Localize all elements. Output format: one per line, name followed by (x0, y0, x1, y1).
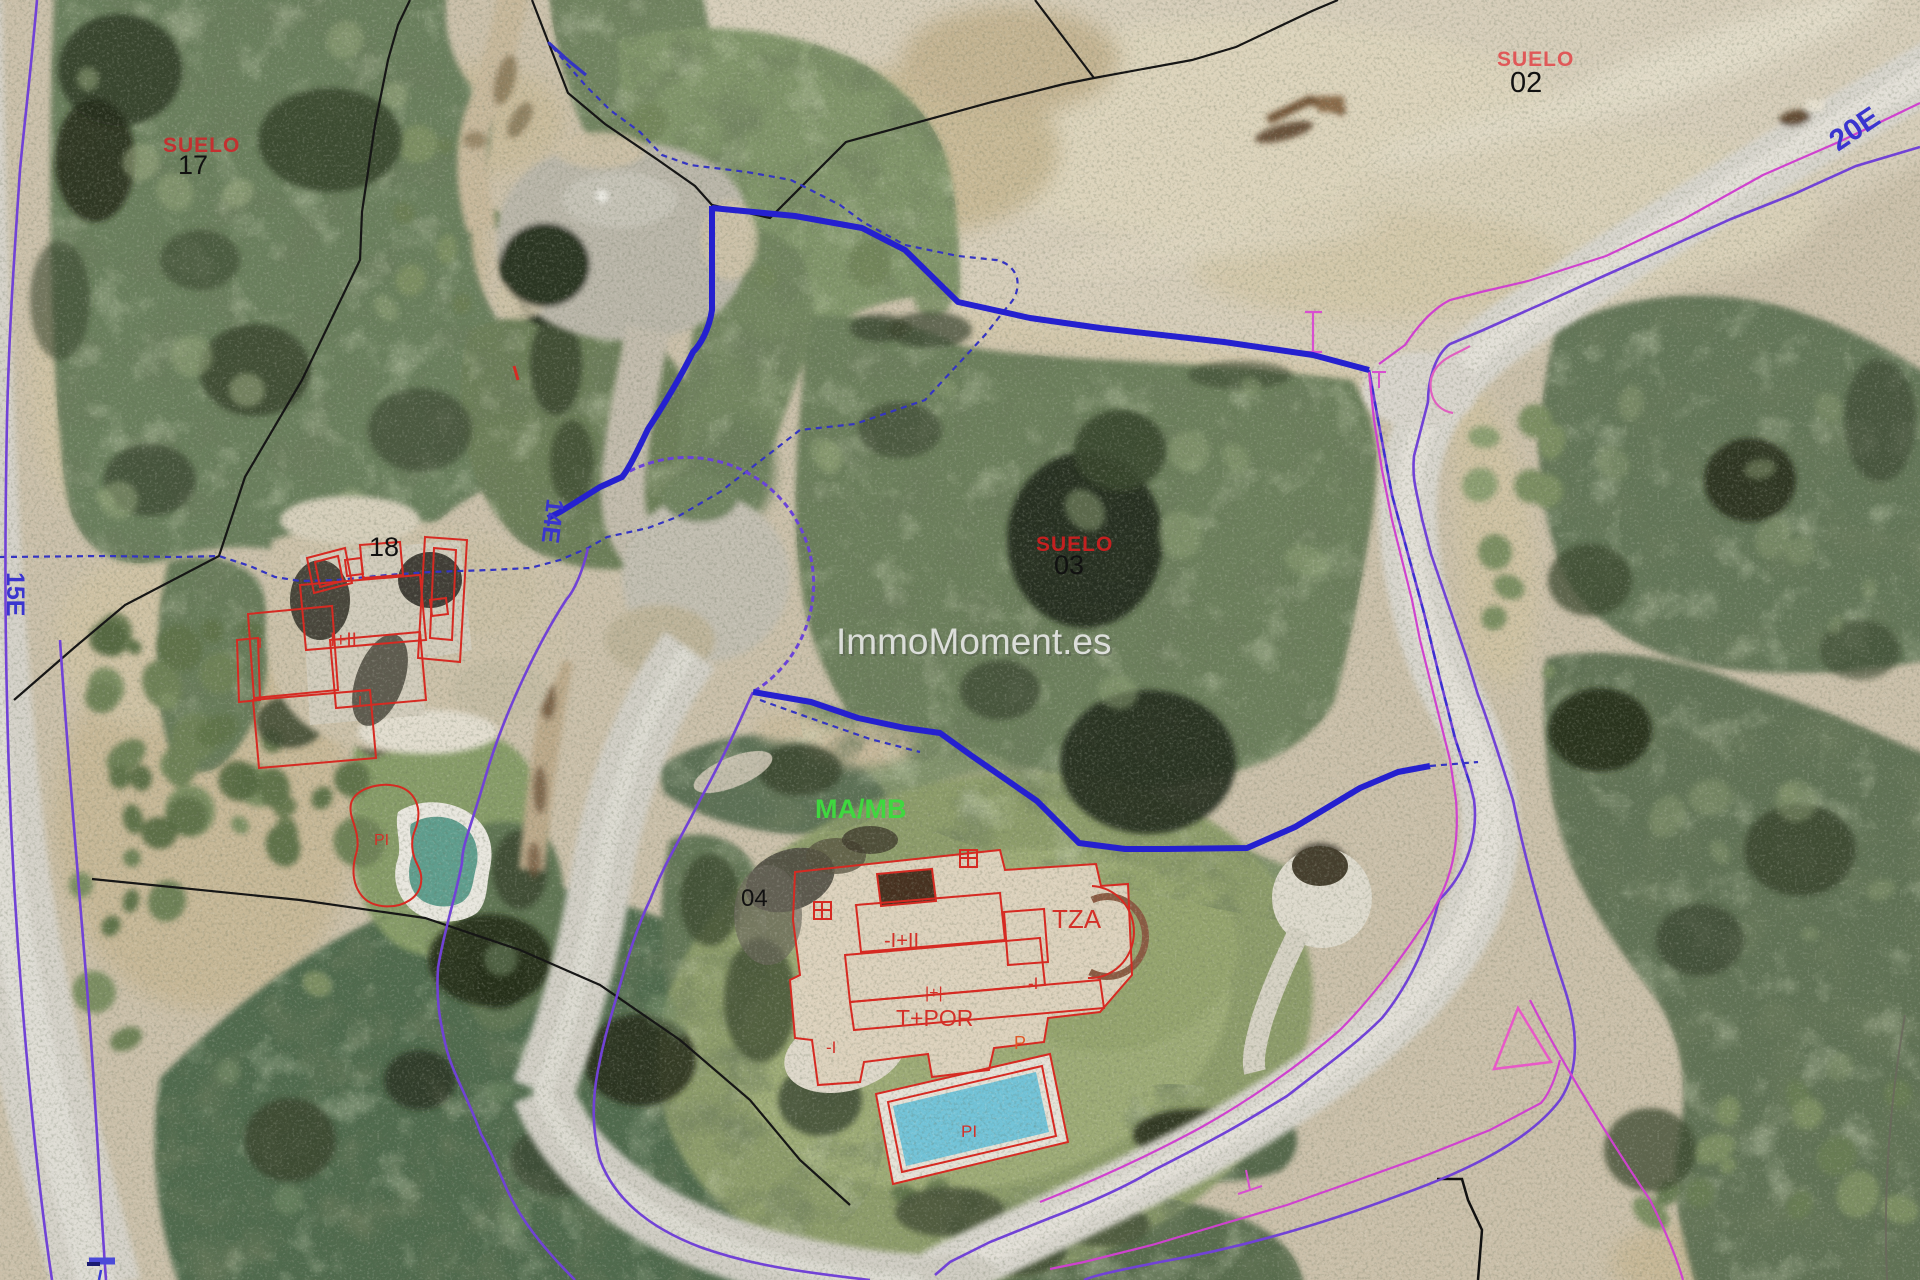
svg-text:P: P (1014, 1033, 1026, 1053)
svg-text:04: 04 (741, 885, 768, 912)
svg-text:18: 18 (369, 532, 399, 562)
svg-text:MA/MB: MA/MB (815, 794, 906, 824)
svg-text:PI: PI (374, 832, 389, 849)
svg-text:I+II: I+II (330, 630, 357, 651)
svg-text:14E: 14E (536, 497, 569, 545)
svg-text:T+POR: T+POR (896, 1005, 973, 1031)
svg-text:03: 03 (1054, 550, 1084, 580)
svg-text:|+|: |+| (925, 985, 943, 1002)
svg-text:I: I (358, 693, 362, 710)
svg-text:02: 02 (1510, 67, 1542, 99)
svg-text:15E: 15E (1, 572, 29, 616)
svg-text:-I: -I (1028, 974, 1038, 993)
svg-text:PI: PI (961, 1122, 977, 1141)
svg-text:ImmoMoment.es: ImmoMoment.es (836, 621, 1112, 662)
svg-text:-I: -I (826, 1038, 836, 1057)
svg-text:I: I (258, 635, 262, 652)
svg-text:TZA: TZA (1052, 904, 1102, 934)
svg-text:17: 17 (178, 150, 208, 180)
svg-text:-I+II: -I+II (884, 930, 919, 952)
